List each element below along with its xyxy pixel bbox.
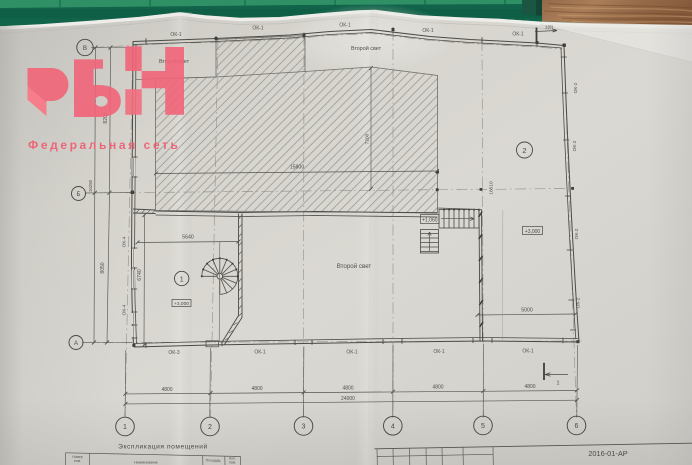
svg-text:5640: 5640 — [182, 235, 194, 241]
svg-text:ОК-2: ОК-2 — [576, 297, 582, 308]
svg-text:1: 1 — [557, 381, 560, 387]
svg-text:Второй свет: Второй свет — [351, 45, 382, 52]
svg-text:ОК-1: ОК-1 — [346, 350, 357, 356]
svg-text:4800: 4800 — [161, 387, 172, 393]
svg-text:ОК-1: ОК-1 — [252, 26, 263, 32]
svg-text:пом.: пом. — [74, 459, 81, 463]
svg-text:8050: 8050 — [100, 262, 106, 273]
svg-text:4800: 4800 — [251, 386, 262, 392]
svg-text:ОК-1: ОК-1 — [170, 32, 181, 38]
svg-text:ОК-3: ОК-3 — [168, 350, 179, 356]
svg-text:ОК-2: ОК-2 — [574, 228, 580, 239]
svg-text:ОК-1: ОК-1 — [433, 349, 444, 355]
svg-text:ОК-1: ОК-1 — [422, 28, 433, 34]
svg-text:6740: 6740 — [137, 269, 143, 281]
svg-text:2016-01-АР: 2016-01-АР — [588, 449, 628, 458]
svg-text:+3,000: +3,000 — [174, 301, 189, 307]
svg-text:1: 1 — [123, 424, 127, 431]
svg-text:2: 2 — [208, 424, 212, 431]
svg-text:Экспликация помещений: Экспликация помещений — [118, 443, 208, 451]
svg-text:ОК-1: ОК-1 — [339, 23, 350, 29]
svg-text:А: А — [74, 341, 78, 347]
svg-text:4800: 4800 — [342, 385, 353, 391]
svg-text:5: 5 — [481, 423, 485, 430]
svg-text:16250: 16250 — [88, 179, 93, 192]
svg-text:+1,060: +1,060 — [422, 218, 438, 224]
svg-text:1: 1 — [180, 276, 184, 283]
svg-text:3: 3 — [302, 424, 306, 431]
svg-text:В: В — [83, 45, 87, 52]
svg-text:ОК-1: ОК-1 — [522, 349, 533, 355]
svg-text:Б: Б — [77, 192, 81, 198]
svg-text:ОК-2: ОК-2 — [572, 140, 578, 151]
svg-text:ОК-4: ОК-4 — [122, 236, 128, 247]
svg-text:+3,000: +3,000 — [525, 229, 541, 235]
svg-text:Федеральная сеть: Федеральная сеть — [28, 138, 181, 152]
svg-text:5000: 5000 — [521, 308, 533, 314]
svg-text:ОК-1: ОК-1 — [512, 32, 523, 38]
svg-text:7200: 7200 — [365, 133, 371, 144]
svg-text:24000: 24000 — [341, 396, 355, 402]
svg-text:4800: 4800 — [432, 385, 443, 391]
svg-text:4: 4 — [391, 424, 395, 431]
svg-text:ОК-1: ОК-1 — [254, 350, 265, 356]
svg-text:1(9): 1(9) — [545, 25, 554, 30]
svg-text:6: 6 — [575, 423, 579, 430]
svg-text:ОК-2: ОК-2 — [573, 82, 579, 93]
svg-text:16510: 16510 — [489, 181, 495, 195]
svg-text:Площадь,: Площадь, — [206, 459, 222, 463]
svg-text:2: 2 — [522, 146, 526, 155]
svg-text:4800: 4800 — [524, 384, 535, 390]
svg-text:15800: 15800 — [290, 165, 305, 171]
svg-text:пом.: пом. — [229, 461, 236, 465]
svg-text:Второй свет: Второй свет — [337, 263, 372, 270]
svg-text:ОК-4: ОК-4 — [122, 304, 128, 315]
svg-text:Наименование: Наименование — [134, 461, 158, 465]
